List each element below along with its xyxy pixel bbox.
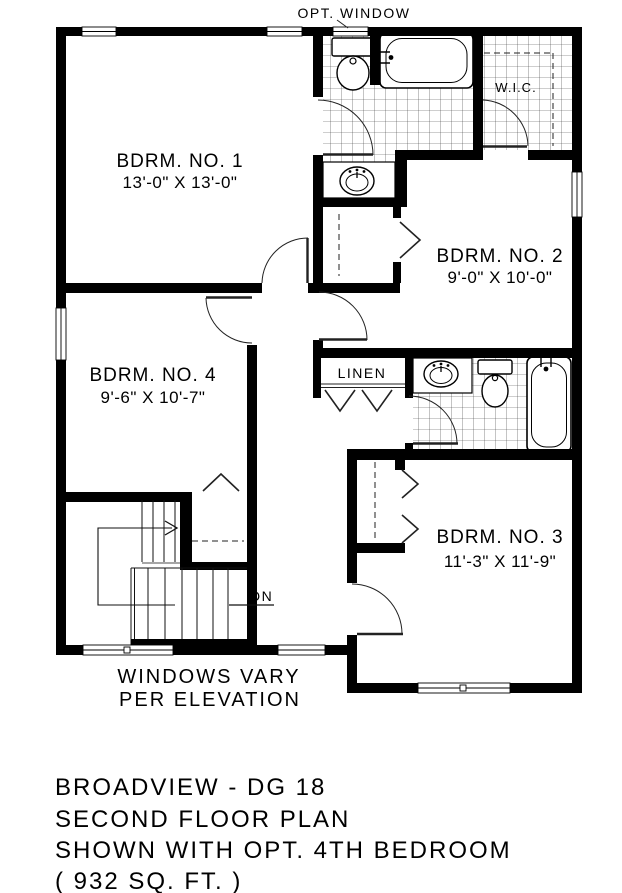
window-bottom-3 [418,683,510,693]
floor-plan-sheet: OPT. WINDOW BDRM. NO. 1 13'-0" X 13'-0" … [0,0,622,893]
bifold-door-linen-a-icon [325,390,355,411]
bathtub-1 [378,33,473,88]
linen-front-edge [321,384,405,388]
title-line-4: ( 932 SQ. FT. ) [55,868,242,893]
window-bottom-1 [83,645,173,655]
bifold-door-bdrm2-icon [400,222,420,258]
wic-label: W.I.C. [495,80,536,95]
window-top-1 [82,27,116,36]
window-bottom-2 [278,645,325,655]
window-top-optional [333,27,368,36]
title-line-3: SHOWN WITH OPT. 4TH BEDROOM [55,837,512,864]
stair-outline-lower-flight [98,528,175,605]
window-left [56,308,66,360]
windows-vary-line1: WINDOWS VARY [117,666,300,688]
window-right [572,172,582,217]
stair-edge-left [131,568,135,645]
door-bdrm1 [262,238,308,283]
bdrm4-name-label: BDRM. NO. 4 [89,365,216,386]
title-block: BROADVIEW - DG 18 SECOND FLOOR PLAN SHOW… [55,774,512,893]
linen-label: LINEN [338,365,387,381]
opt-window-label: OPT. WINDOW [298,5,411,21]
door-bdrm2 [319,292,367,340]
bifold-door-linen-b-icon [362,390,392,411]
door-bdrm3 [352,584,403,634]
door-bdrm4 [206,298,252,344]
floor-plan-drawing: OPT. WINDOW BDRM. NO. 1 13'-0" X 13'-0" … [0,0,622,893]
bifold-door-bdrm4-icon [203,474,239,491]
stair-treads-lower [148,568,228,639]
title-line-1: BROADVIEW - DG 18 [55,774,326,801]
bifold-door-bdrm3-a-icon [402,470,418,498]
bdrm1-dims-label: 13'-0" X 13'-0" [123,173,238,192]
bdrm4-dims-label: 9'-6" X 10'-7" [101,388,206,407]
stair-bottom-edge [131,639,247,645]
stair-treads-upper [142,500,175,562]
window-top-2 [267,27,302,36]
vanity-sink-1 [323,162,395,198]
windows-vary-line2: PER ELEVATION [119,689,301,711]
bathtub-2 [527,357,571,452]
bdrm3-dims-label: 11'-3" X 11'-9" [444,552,556,571]
bdrm3-name-label: BDRM. NO. 3 [436,527,563,548]
bifold-door-bdrm3-b-icon [402,515,418,543]
bdrm1-name-label: BDRM. NO. 1 [116,151,243,172]
bdrm2-name-label: BDRM. NO. 2 [436,246,563,267]
dn-label: DN [250,588,273,604]
bdrm2-dims-label: 9'-0" X 10'-0" [448,268,553,287]
title-line-2: SECOND FLOOR PLAN [55,806,350,833]
bath1-tile-nook [323,150,395,162]
vanity-sink-2 [413,358,472,393]
